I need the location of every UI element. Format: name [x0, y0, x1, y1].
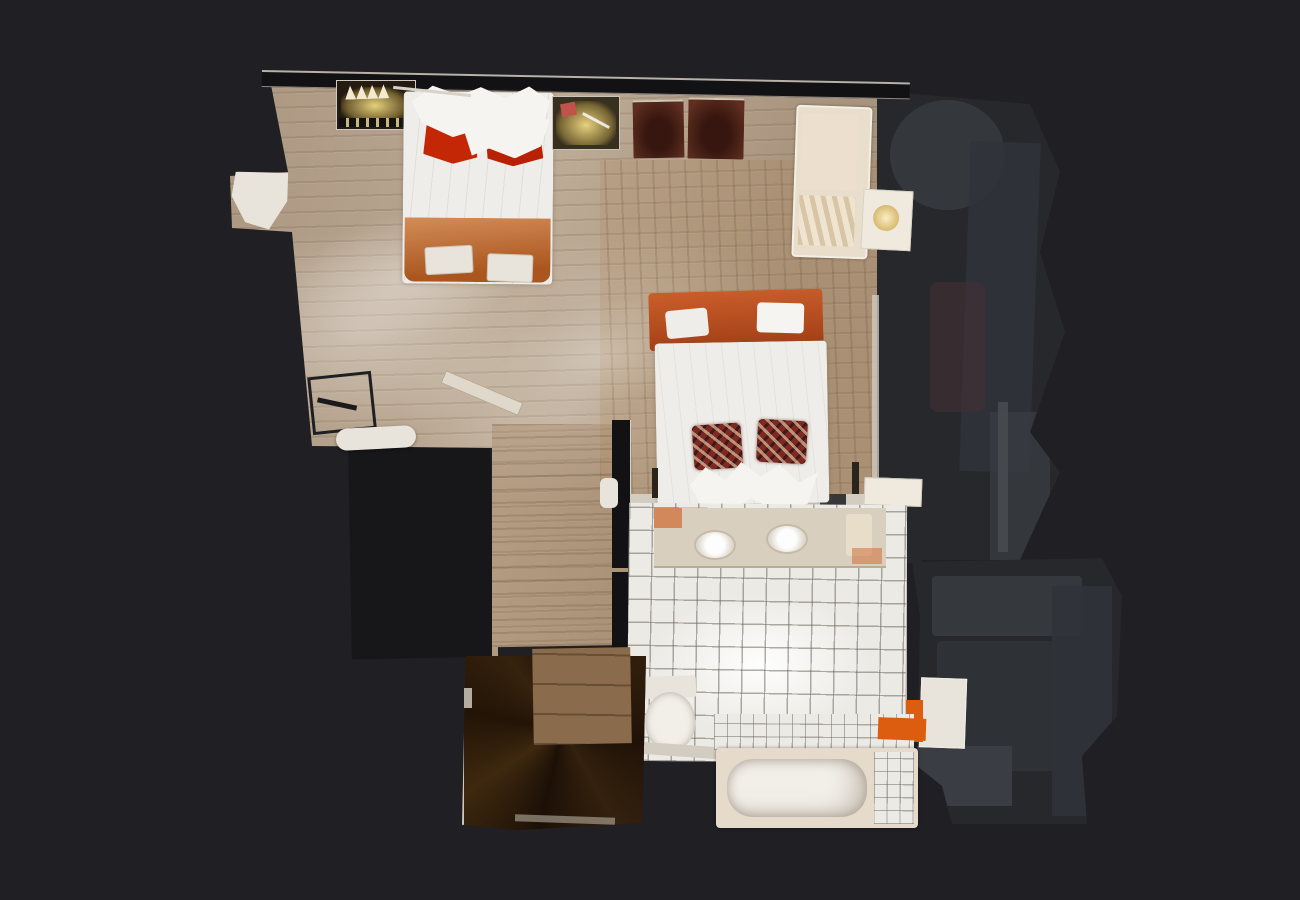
tub-deck-tiles [874, 752, 914, 824]
unlit-panel-ghost [917, 746, 1012, 806]
unlit-shelf-ghost [998, 402, 1008, 552]
unlit-wardrobe-ghost [1052, 586, 1112, 816]
glass-table [552, 96, 620, 150]
unlit-furniture-ghost [930, 282, 985, 412]
bathtub-surround [716, 748, 918, 828]
bed2-tartan-pillow-right [756, 419, 808, 465]
bed2-post [852, 462, 859, 494]
desk-chair [307, 371, 377, 435]
bed1-tray [487, 253, 534, 283]
sink-right [766, 524, 808, 554]
ottoman-left [632, 100, 684, 159]
sofa-cushion [800, 113, 859, 191]
bath-shelf-white [919, 677, 967, 749]
bed2-headboard-pillow [665, 307, 709, 339]
sofa-slats [798, 195, 856, 247]
red-card [560, 102, 577, 117]
wall-bed2-right [872, 295, 879, 505]
bed2-headboard-pillow [757, 302, 805, 333]
wardrobe-shelf [339, 118, 411, 127]
shadow-void [348, 441, 494, 659]
bed1-tray [424, 245, 473, 275]
stair-landing [532, 647, 632, 745]
chair-bar [317, 397, 357, 410]
door-opening [600, 478, 618, 508]
floor-roll [335, 425, 416, 451]
tub-towel-orange [878, 717, 927, 741]
stair-edge-highlight [464, 688, 472, 708]
bed2-nightstand [864, 477, 923, 507]
bathtub [727, 759, 867, 817]
hallway-floor [492, 424, 628, 656]
sink-left [694, 530, 736, 560]
vanity-towel-orange [654, 508, 682, 528]
sofa [791, 105, 868, 255]
lamp-glow [872, 204, 899, 231]
vanity [654, 508, 886, 568]
bed2-tartan-pillow-left [691, 422, 743, 470]
floorplan-canvas[interactable] [0, 0, 1300, 900]
nightstand-lamp [860, 189, 913, 252]
ottoman-right [687, 98, 744, 160]
vanity-towel-orange [852, 548, 882, 564]
bed2-post [652, 468, 658, 498]
